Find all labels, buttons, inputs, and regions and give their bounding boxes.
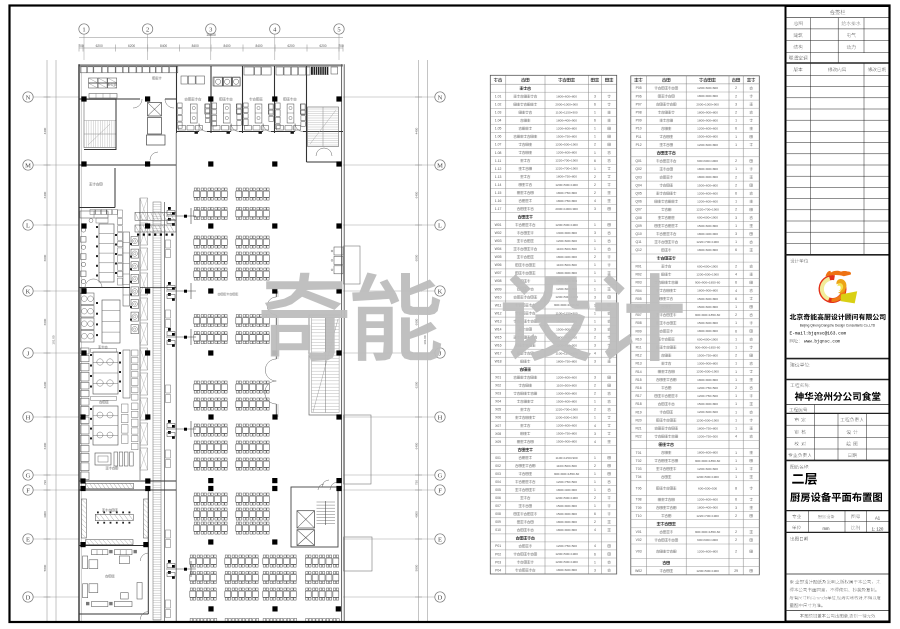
svg-text:1: 1: [594, 127, 596, 131]
svg-text:1800×900×800: 1800×900×800: [697, 175, 718, 179]
svg-text:2: 2: [594, 335, 596, 339]
svg-text:001: 001: [495, 456, 501, 460]
svg-text:3: 3: [594, 376, 596, 380]
svg-text:1220×700×1900: 1220×700×1900: [555, 159, 578, 163]
svg-text:Q05: Q05: [635, 192, 642, 196]
svg-text:L: L: [438, 222, 442, 229]
svg-text:W15: W15: [495, 335, 502, 339]
svg-text:1500×900×800: 1500×900×800: [556, 504, 577, 508]
svg-text:R08: R08: [635, 321, 641, 325]
svg-text:1500×900×800: 1500×900×800: [556, 512, 577, 516]
svg-text:W16: W16: [495, 344, 502, 348]
svg-text:6: 6: [735, 192, 737, 196]
svg-text:2: 2: [735, 354, 737, 358]
svg-text:1: 1: [735, 451, 737, 455]
svg-text:1: 1: [735, 143, 737, 147]
svg-text:1500×600×800: 1500×600×800: [697, 297, 718, 301]
svg-text:X09: X09: [495, 440, 501, 444]
svg-text:1200×500×1900: 1200×500×1900: [696, 418, 719, 422]
svg-text:900×900×1850-60: 900×900×1850-60: [695, 459, 721, 463]
svg-text:8400: 8400: [255, 44, 262, 48]
svg-text:1: 1: [735, 119, 737, 123]
svg-text:1: 1: [735, 346, 737, 350]
svg-text:8400: 8400: [223, 44, 230, 48]
svg-text:E: E: [26, 536, 30, 543]
svg-text:1: 1: [82, 26, 85, 33]
svg-text:W04: W04: [495, 247, 502, 251]
svg-text:1: 1: [594, 456, 596, 460]
svg-text:2: 2: [594, 464, 596, 468]
svg-text:E-mail:bjqnsc@163.com: E-mail:bjqnsc@163.com: [790, 331, 847, 337]
svg-text:1: 1: [735, 378, 737, 382]
svg-text:Beijing Qineng Dangchu Design: Beijing Qineng Dangchu Design Consultant…: [800, 324, 876, 328]
svg-text:W12: W12: [495, 311, 502, 315]
svg-text:4900: 4900: [43, 511, 47, 518]
svg-text:1: 1: [735, 418, 737, 422]
svg-text:W08: W08: [495, 279, 502, 283]
svg-text:6200: 6200: [414, 381, 418, 388]
svg-text:600×600×1900: 600×600×1900: [697, 159, 718, 163]
svg-text:1100×500×800: 1100×500×800: [556, 263, 577, 267]
svg-text:6200: 6200: [319, 44, 326, 48]
svg-text:R10: R10: [635, 337, 641, 341]
svg-text:D: D: [438, 594, 443, 601]
svg-text:2: 2: [146, 26, 149, 33]
svg-text:6: 6: [735, 281, 737, 285]
svg-text:1: 1: [594, 311, 596, 315]
svg-text:007: 007: [495, 504, 501, 508]
svg-text:2000×1000×900: 2000×1000×900: [696, 102, 719, 106]
svg-text:P06: P06: [636, 94, 642, 98]
svg-text:P10: P10: [636, 127, 642, 131]
svg-text:Q11: Q11: [636, 240, 642, 244]
svg-text:3: 3: [735, 506, 737, 510]
svg-text:X08: X08: [495, 432, 501, 436]
svg-text:3: 3: [594, 231, 596, 235]
svg-text:6: 6: [735, 127, 737, 131]
svg-text:1: 1: [594, 480, 596, 484]
svg-text:1500×750×800: 1500×750×800: [556, 135, 577, 139]
svg-text:1: 1: [594, 135, 596, 139]
svg-text:1: 1: [735, 224, 737, 228]
svg-text:R20: R20: [635, 418, 641, 422]
svg-text:R02: R02: [635, 273, 641, 277]
svg-text:1200×600×600: 1200×600×600: [556, 239, 577, 243]
svg-text:L: L: [26, 222, 30, 229]
svg-text:1300×900×800: 1300×900×800: [556, 392, 577, 396]
svg-text:1: 1: [594, 111, 596, 115]
svg-text:1800×400×900: 1800×400×900: [697, 232, 718, 236]
svg-text:R17: R17: [635, 394, 641, 398]
svg-text:008: 008: [495, 512, 501, 516]
svg-text:1: 1: [594, 416, 596, 420]
svg-text:3: 3: [594, 344, 596, 348]
svg-text:1200×500×1900: 1200×500×1900: [555, 552, 578, 556]
svg-text:T06: T06: [636, 486, 642, 490]
svg-text:4: 4: [735, 273, 737, 277]
svg-text:1800×750×800: 1800×750×800: [556, 359, 577, 363]
svg-text:1200×600×600: 1200×600×600: [556, 376, 577, 380]
svg-text:1: 1: [735, 459, 737, 463]
svg-text:1800×900×800: 1800×900×800: [556, 528, 577, 532]
svg-text:R21: R21: [635, 427, 641, 431]
svg-text:1.05: 1.05: [495, 127, 502, 131]
svg-text:720: 720: [43, 480, 47, 485]
svg-text:1800×900×800: 1800×900×800: [697, 289, 718, 293]
svg-text:1500×900×800: 1500×900×800: [556, 440, 577, 444]
svg-text:T09: T09: [636, 506, 642, 510]
svg-text:1200×500×1900: 1200×500×1900: [696, 370, 719, 374]
svg-text:K: K: [26, 288, 31, 295]
svg-text:1: 1: [594, 263, 596, 267]
svg-text:G: G: [26, 472, 31, 479]
svg-text:1200×500×1900: 1200×500×1900: [555, 183, 578, 187]
svg-text:4400: 4400: [414, 127, 418, 134]
svg-text:E: E: [438, 536, 442, 543]
svg-text:3: 3: [594, 568, 596, 572]
svg-text:3: 3: [594, 432, 596, 436]
svg-text:2: 2: [735, 111, 737, 115]
svg-text:1220×700×1900: 1220×700×1900: [555, 408, 578, 412]
svg-text:1200×600×800: 1200×600×800: [697, 550, 718, 554]
svg-text:P03: P03: [495, 560, 501, 564]
svg-text:6400: 6400: [43, 191, 47, 198]
svg-text:4: 4: [594, 528, 596, 532]
svg-text:6400: 6400: [414, 442, 418, 449]
svg-text:W18: W18: [495, 360, 502, 364]
svg-text:6400: 6400: [43, 442, 47, 449]
svg-text:Q09: Q09: [635, 224, 642, 228]
svg-text:6400: 6400: [414, 191, 418, 198]
svg-text:004: 004: [495, 480, 501, 484]
svg-text:R19: R19: [635, 410, 641, 414]
svg-text:6: 6: [735, 248, 737, 252]
svg-text:3: 3: [594, 207, 596, 211]
svg-text:6: 6: [594, 159, 596, 163]
svg-text:900×900×1850-60: 900×900×1850-60: [695, 345, 721, 349]
svg-text:1: 1: [735, 167, 737, 171]
svg-text:002: 002: [495, 464, 501, 468]
svg-text:1200×600×600: 1200×600×600: [697, 86, 718, 90]
svg-text:1: 1: [594, 223, 596, 227]
svg-text:W02: W02: [495, 231, 502, 235]
svg-text:R03: R03: [635, 281, 641, 285]
svg-text:X01: X01: [495, 376, 501, 380]
svg-text:1500×600×800: 1500×600×800: [556, 400, 577, 404]
svg-text:2: 2: [735, 530, 737, 534]
svg-text:600×500×500: 600×500×500: [698, 486, 717, 490]
svg-text:1800×600×800: 1800×600×800: [697, 248, 718, 252]
svg-text:2: 2: [735, 94, 737, 98]
svg-text:N: N: [438, 94, 443, 101]
svg-text:4: 4: [594, 352, 596, 356]
svg-text:006: 006: [495, 496, 501, 500]
svg-text:X06: X06: [495, 416, 501, 420]
svg-text:8400: 8400: [192, 44, 199, 48]
svg-text:W07: W07: [495, 271, 502, 275]
svg-text:1: 1: [735, 362, 737, 366]
svg-text:P07: P07: [636, 102, 642, 106]
svg-text:W11: W11: [495, 303, 502, 307]
svg-text:1: 1: [594, 239, 596, 243]
svg-text:T04: T04: [636, 475, 642, 479]
svg-text:H: H: [438, 414, 443, 421]
svg-text:1200×600×800: 1200×600×800: [556, 151, 577, 155]
svg-text:1: 1: [594, 488, 596, 492]
svg-text:009: 009: [495, 520, 501, 524]
svg-text:R18: R18: [635, 402, 641, 406]
svg-text:1800×400×900: 1800×400×900: [556, 119, 577, 123]
svg-text:1: 1: [594, 287, 596, 291]
svg-text:1: 1: [735, 337, 737, 341]
svg-text:16800: 16800: [206, 33, 216, 37]
svg-text:6: 6: [594, 119, 596, 123]
svg-text:1500×600×800: 1500×600×800: [697, 224, 718, 228]
svg-text:1: 1: [735, 240, 737, 244]
svg-text:1: 1: [594, 319, 596, 323]
svg-text:1200×500×1900: 1200×500×1900: [696, 272, 719, 276]
svg-text:5800: 5800: [414, 564, 418, 571]
svg-text:2: 2: [735, 386, 737, 390]
svg-text:2: 2: [735, 183, 737, 187]
svg-text:1200×500×1900: 1200×500×1900: [555, 416, 578, 420]
svg-text:1200×750×500: 1200×750×500: [556, 480, 577, 484]
svg-text:1200×600×600: 1200×600×600: [697, 498, 718, 502]
svg-text:1: 120: 1: 120: [872, 527, 884, 532]
svg-text:2: 2: [594, 392, 596, 396]
svg-text:R22: R22: [635, 435, 641, 439]
svg-text:T01: T01: [636, 451, 642, 455]
svg-text:D: D: [26, 594, 31, 601]
svg-text:5: 5: [337, 26, 340, 33]
svg-text:P09: P09: [636, 119, 642, 123]
svg-text:Q12: Q12: [635, 248, 642, 252]
svg-text:R11: R11: [636, 346, 642, 350]
svg-text:R16: R16: [635, 386, 641, 390]
svg-text:2: 2: [594, 255, 596, 259]
svg-text:X07: X07: [495, 424, 501, 428]
svg-text:1: 1: [735, 370, 737, 374]
svg-text:W05: W05: [495, 255, 502, 259]
svg-text:003: 003: [495, 472, 501, 476]
svg-text:1800×750×800: 1800×750×800: [697, 426, 718, 430]
svg-text:1.16: 1.16: [495, 199, 502, 203]
svg-text:1220×700×1900: 1220×700×1900: [696, 514, 719, 518]
svg-text:1800×400×900: 1800×400×900: [556, 255, 577, 259]
svg-text:900×900×1850-60: 900×900×1850-60: [695, 530, 721, 534]
svg-text:1500×750×800: 1500×750×800: [697, 354, 718, 358]
svg-text:Q08: Q08: [635, 216, 642, 220]
svg-text:900×900×1850-60: 900×900×1850-60: [695, 313, 721, 317]
svg-text:6: 6: [594, 552, 596, 556]
svg-text:1200×600×600: 1200×600×600: [697, 127, 718, 131]
svg-text:1: 1: [735, 467, 737, 471]
svg-text:R07: R07: [635, 313, 641, 317]
svg-text:4: 4: [594, 544, 596, 548]
svg-text:2: 2: [594, 183, 596, 187]
svg-text:H: H: [26, 414, 31, 421]
svg-text:2: 2: [735, 538, 737, 542]
svg-text:2: 2: [594, 143, 596, 147]
svg-text:R05: R05: [635, 297, 641, 301]
svg-text:4900: 4900: [414, 511, 418, 518]
svg-text:Q03: Q03: [635, 175, 642, 179]
svg-text:1200×500×1900: 1200×500×1900: [696, 569, 719, 573]
svg-text:1800×400×900: 1800×400×900: [697, 506, 718, 510]
svg-text:4: 4: [594, 199, 596, 203]
svg-text:P05: P05: [636, 86, 642, 90]
svg-text:1.01: 1.01: [495, 95, 502, 99]
svg-text:1: 1: [735, 321, 737, 325]
svg-text:2: 2: [735, 159, 737, 163]
svg-text:R04: R04: [635, 289, 641, 293]
svg-text:V01: V01: [636, 530, 642, 534]
svg-text:3: 3: [735, 102, 737, 106]
svg-text:1100×500×800: 1100×500×800: [556, 384, 577, 388]
svg-text:900×900×1850-60: 900×900×1850-60: [695, 281, 721, 285]
svg-text:1: 1: [735, 427, 737, 431]
svg-text:1.15: 1.15: [495, 191, 502, 195]
svg-text:720: 720: [414, 480, 418, 485]
svg-text:1300×900×800: 1300×900×800: [697, 362, 718, 366]
svg-text:1: 1: [735, 394, 737, 398]
svg-text:M: M: [437, 162, 443, 169]
svg-text:4: 4: [735, 435, 737, 439]
svg-text:2: 2: [594, 175, 596, 179]
svg-text:4: 4: [735, 289, 737, 293]
svg-text:1.11: 1.11: [495, 159, 501, 163]
svg-text:V03: V03: [636, 550, 642, 554]
svg-text:P12: P12: [636, 143, 642, 147]
svg-text:1800×600×800: 1800×600×800: [556, 568, 577, 572]
svg-text:1100×500×800: 1100×500×800: [556, 464, 577, 468]
svg-text:W09: W09: [495, 287, 502, 291]
svg-text:1.17: 1.17: [495, 207, 502, 211]
svg-text:1200×500×1900: 1200×500×1900: [555, 496, 578, 500]
svg-text:Q04: Q04: [635, 183, 642, 187]
svg-text:1200×500×1900: 1200×500×1900: [555, 560, 578, 564]
svg-text:1200×500×1900: 1200×500×1900: [555, 223, 578, 227]
svg-text:R15: R15: [635, 378, 641, 382]
svg-text:W01: W01: [495, 223, 502, 227]
svg-text:Q07: Q07: [635, 208, 642, 212]
svg-text:P01: P01: [495, 544, 501, 548]
svg-text:6000: 6000: [43, 254, 47, 261]
svg-text:X02: X02: [495, 384, 501, 388]
svg-text:6200: 6200: [96, 44, 103, 48]
svg-text:6000: 6000: [414, 254, 418, 261]
svg-text:1800×900×800: 1800×900×800: [697, 119, 718, 123]
svg-text:R09: R09: [635, 329, 641, 333]
svg-text:4: 4: [594, 440, 596, 444]
svg-text:6: 6: [735, 498, 737, 502]
svg-text:1800×900×800: 1800×900×800: [697, 110, 718, 114]
svg-text:T02: T02: [636, 459, 642, 463]
svg-text:W06: W06: [495, 263, 502, 267]
svg-text:F: F: [438, 487, 442, 494]
svg-text:010: 010: [495, 528, 501, 532]
svg-text:1200×750×500: 1200×750×500: [697, 386, 718, 390]
svg-text:T08: T08: [636, 498, 642, 502]
svg-text:R14: R14: [635, 370, 641, 374]
svg-text:1500×750×800: 1500×750×800: [556, 432, 577, 436]
svg-text:F: F: [26, 487, 30, 494]
svg-text:1: 1: [594, 400, 596, 404]
svg-text:T03: T03: [636, 467, 642, 471]
svg-text:2: 2: [735, 514, 737, 518]
svg-text:1500×600×800: 1500×600×800: [697, 321, 718, 325]
svg-text:4: 4: [594, 424, 596, 428]
svg-text:1220×700×1900: 1220×700×1900: [696, 240, 719, 244]
svg-text:R13: R13: [635, 362, 641, 366]
svg-text:1200×500×1900: 1200×500×1900: [555, 143, 578, 147]
svg-text:1800×600×800: 1800×600×800: [556, 94, 577, 98]
svg-text:1800×900×800: 1800×900×800: [556, 520, 577, 524]
svg-text:2000×1000×900: 2000×1000×900: [555, 103, 578, 107]
svg-text:1220×700×1900: 1220×700×1900: [696, 208, 719, 212]
svg-text:4400: 4400: [43, 127, 47, 134]
svg-text:1200×600×600: 1200×600×600: [697, 410, 718, 414]
svg-text:1.06: 1.06: [495, 135, 502, 139]
svg-text:X04: X04: [495, 400, 501, 404]
svg-text:1200×600×600: 1200×600×600: [697, 191, 718, 195]
svg-text:W02: W02: [635, 569, 642, 573]
svg-text:1500×900×800: 1500×900×800: [697, 402, 718, 406]
svg-text:1800×900×800: 1800×900×800: [697, 329, 718, 333]
svg-text:V02: V02: [636, 538, 642, 542]
svg-text:5800: 5800: [43, 564, 47, 571]
svg-text:1800×750×800: 1800×750×800: [556, 199, 577, 203]
svg-text:600×600×1900: 600×600×1900: [697, 337, 718, 341]
svg-text:1: 1: [735, 402, 737, 406]
svg-text:2: 2: [735, 86, 737, 90]
svg-text:29: 29: [734, 569, 738, 573]
svg-text:1500×600×800: 1500×600×800: [697, 183, 718, 187]
svg-text:2: 2: [594, 191, 596, 195]
svg-text:3: 3: [735, 232, 737, 236]
svg-text:1: 1: [594, 247, 596, 251]
svg-text:005: 005: [495, 488, 501, 492]
svg-text:1.07: 1.07: [495, 143, 502, 147]
svg-text:W13: W13: [495, 319, 502, 323]
svg-text:1800×750×800: 1800×750×800: [556, 191, 577, 195]
svg-text:1800×900×800: 1800×900×800: [697, 94, 718, 98]
svg-text:6200: 6200: [128, 44, 135, 48]
svg-text:600×600×1900: 600×600×1900: [697, 216, 718, 220]
svg-text:X05: X05: [495, 408, 501, 412]
svg-text:1500×600×800: 1500×600×800: [697, 305, 718, 309]
svg-text:2: 2: [735, 313, 737, 317]
svg-text:600×600×1900: 600×600×1900: [697, 264, 718, 268]
svg-text:1200×600×800: 1200×600×800: [556, 127, 577, 131]
svg-text:3: 3: [594, 95, 596, 99]
svg-text:1: 1: [594, 167, 596, 171]
svg-text:6200: 6200: [287, 44, 294, 48]
svg-text:6: 6: [735, 297, 737, 301]
svg-text:1: 1: [735, 410, 737, 414]
svg-text:2: 2: [735, 208, 737, 212]
svg-text:1: 1: [594, 560, 596, 564]
svg-text:Q01: Q01: [635, 159, 642, 163]
svg-text:6: 6: [735, 329, 737, 333]
svg-text:6: 6: [594, 512, 596, 516]
svg-text:1: 1: [594, 472, 596, 476]
svg-text:1200×500×1900: 1200×500×1900: [696, 475, 719, 479]
svg-text:900×900×1850-60: 900×900×1850-60: [554, 472, 580, 476]
svg-text:1: 1: [594, 271, 596, 275]
svg-text:3: 3: [594, 295, 596, 299]
svg-text:T10: T10: [636, 514, 642, 518]
